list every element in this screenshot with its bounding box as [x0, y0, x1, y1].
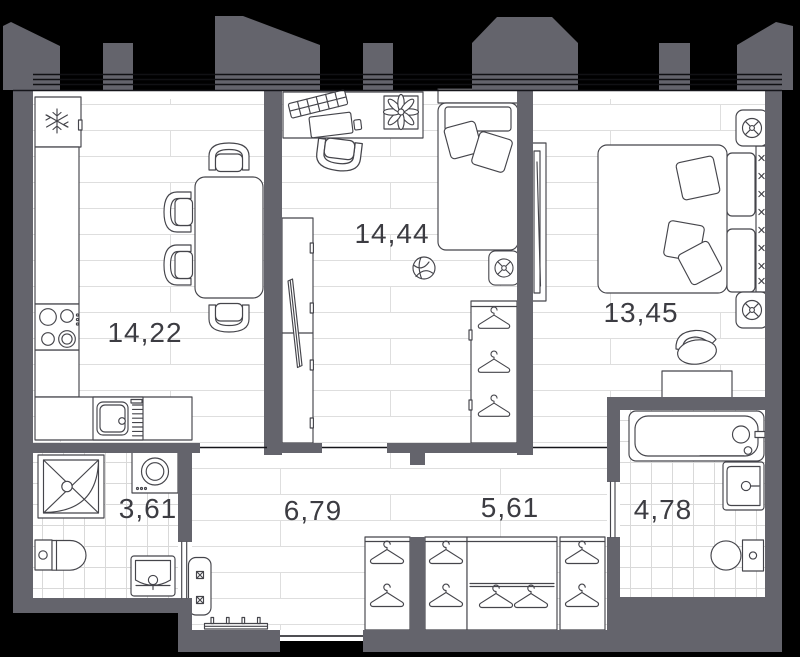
room-label-corridor: 5,61 — [481, 492, 540, 524]
fridge — [35, 97, 82, 147]
room-label-bathroom-2: 4,78 — [634, 494, 693, 526]
room-label-master-bedroom: 13,45 — [603, 297, 678, 329]
single-bed — [438, 89, 518, 250]
toilet-icon — [35, 540, 86, 570]
room-label-bedroom: 14,44 — [354, 218, 429, 250]
hall-wardrobes — [365, 537, 605, 630]
floor-plan: 14,22 14,44 13,45 3,61 6,79 5,61 4,78 — [0, 0, 800, 657]
washing-machine-icon — [132, 452, 178, 493]
sliding-wardrobe — [282, 218, 313, 443]
room-label-hallway: 6,79 — [284, 495, 343, 527]
stove-icon — [35, 304, 79, 350]
plant-icon — [384, 95, 419, 130]
room-label-bathroom: 3,61 — [119, 493, 178, 525]
shower-icon — [38, 455, 104, 518]
room-label-kitchen-living: 14,22 — [107, 317, 182, 349]
ceiling-lamp-icon — [489, 251, 519, 285]
ball-icon — [413, 257, 435, 279]
tv-icon — [531, 143, 546, 301]
hanger-wardrobe — [469, 301, 517, 443]
dining-table-icon — [195, 177, 263, 298]
sink-icon — [131, 556, 175, 596]
kitchen-sink — [93, 397, 143, 440]
sink-icon — [723, 462, 764, 510]
bathtub-icon — [629, 411, 765, 461]
